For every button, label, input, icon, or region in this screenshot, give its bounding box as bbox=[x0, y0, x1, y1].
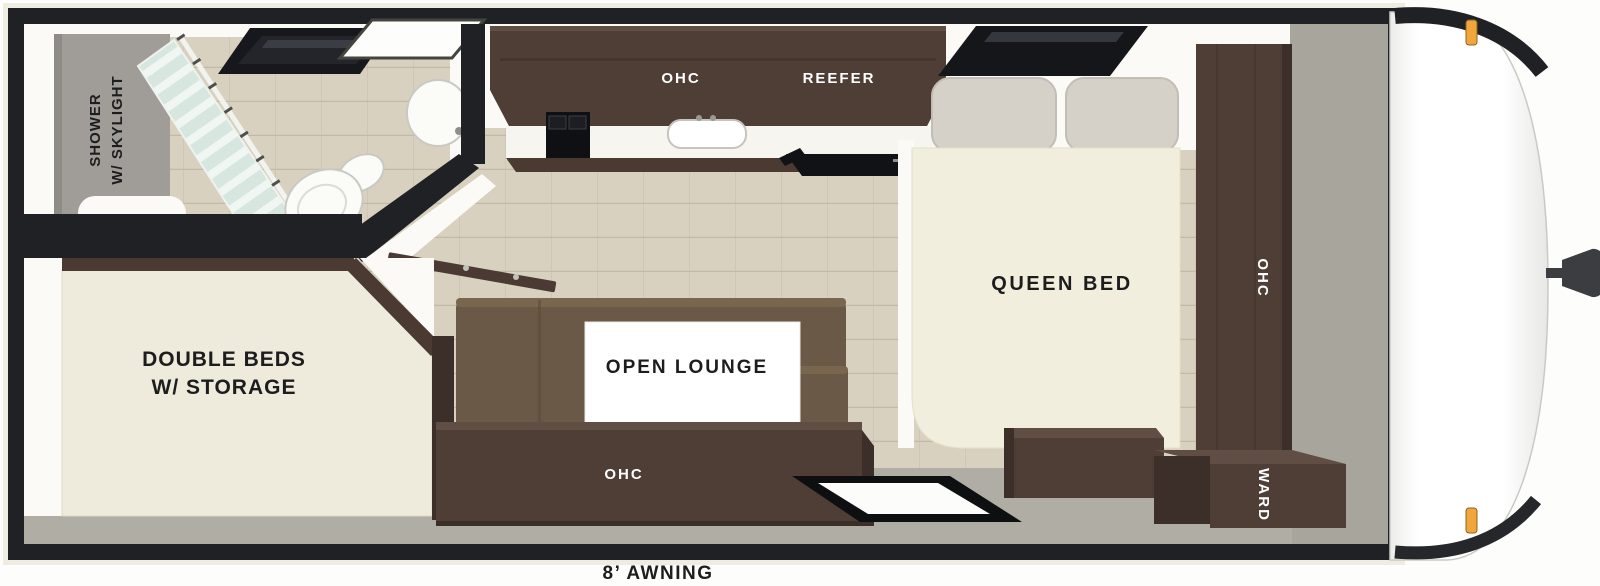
marker-light-bottom bbox=[1466, 508, 1477, 533]
kitchen-sink-icon bbox=[668, 120, 746, 148]
pillow bbox=[932, 78, 1056, 152]
double-bed bbox=[62, 270, 432, 516]
sofa-armrest-edge bbox=[796, 366, 848, 374]
divider-wall bbox=[8, 214, 362, 258]
cabinet-shade bbox=[1282, 44, 1292, 470]
wardrobe bbox=[1210, 464, 1346, 528]
cabinet-grain bbox=[1254, 44, 1256, 470]
kitchen-faucet-icon bbox=[696, 115, 702, 121]
bed-skylight-highlight bbox=[984, 32, 1124, 42]
door-hinge-icon bbox=[513, 274, 519, 280]
front-cap-body bbox=[1390, 12, 1548, 560]
floorplan: SHOWER W/ SKYLIGHT OHC REEFER QUEEN BED … bbox=[0, 0, 1600, 586]
overhead-cabinet-tall bbox=[1196, 44, 1292, 470]
sofa-top-edge bbox=[456, 298, 846, 307]
shower-wall-shade bbox=[54, 34, 62, 218]
kitchen bbox=[490, 26, 952, 176]
pillow bbox=[1066, 78, 1178, 152]
stove-burner-icon bbox=[569, 116, 586, 129]
lounge bbox=[436, 298, 874, 526]
bedroom-wall-left bbox=[24, 258, 62, 544]
double-bed-room bbox=[24, 258, 454, 544]
hitch-coupler-icon bbox=[1546, 249, 1600, 297]
floorplan-svg bbox=[0, 0, 1600, 586]
cabinet-grain bbox=[500, 58, 936, 61]
nightstand-top bbox=[1004, 428, 1164, 438]
bed-trim-top bbox=[62, 258, 354, 271]
door-hinge-icon bbox=[463, 265, 469, 271]
bathroom-wall-left bbox=[24, 24, 57, 224]
nightstand-side bbox=[1004, 428, 1014, 498]
kitchen-faucet-icon bbox=[710, 115, 716, 121]
marker-light-top bbox=[1466, 20, 1477, 45]
bedroom-floor-strip bbox=[24, 516, 454, 544]
stove-burner-icon bbox=[549, 116, 566, 129]
cabinet-top-edge bbox=[490, 26, 946, 31]
front-cap bbox=[1390, 12, 1600, 560]
lounge-cabinet-shadow bbox=[436, 521, 862, 526]
bath-sink-icon bbox=[407, 80, 469, 146]
bathroom-right-wall bbox=[461, 24, 485, 164]
queen-bed bbox=[912, 148, 1180, 448]
cabinet-grain bbox=[1216, 44, 1218, 470]
nightstand bbox=[1012, 438, 1164, 498]
sofa-seam bbox=[538, 300, 541, 430]
open-lounge-card bbox=[585, 322, 800, 430]
lounge-floor-strip bbox=[432, 524, 862, 544]
wardrobe-side bbox=[1154, 456, 1210, 524]
